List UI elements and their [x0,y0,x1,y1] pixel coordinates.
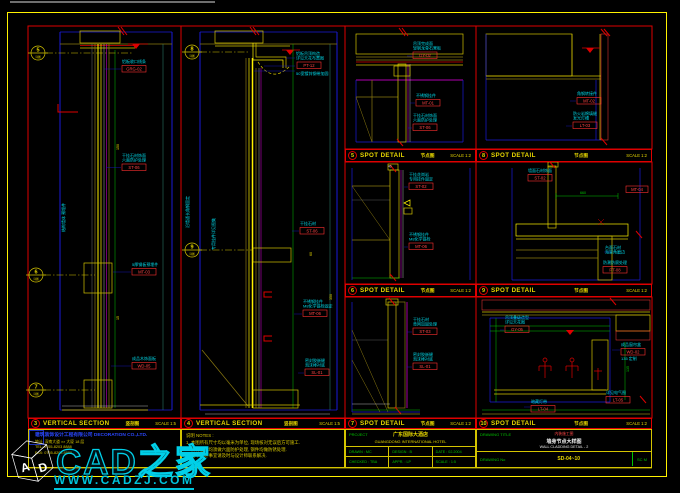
titlebar-scale: SCALE 1:5 [319,421,340,426]
notes-block: 说明 NOTES : 1. 本图所有尺寸均以毫米为单位, 现场核对无误后方可施工… [181,429,345,468]
detail-number-badge: 6 [348,286,357,295]
svg-text:M8化学锚栓: M8化学锚栓 [409,236,431,242]
detail-number-badge: 3 [31,419,40,428]
titlebar-scale: SCALE 1:2 [450,421,471,426]
detail-6-panel: 40 干挂花岗岩 专用挂件固定 ST-02 不锈钢挂件 M8化学锚栓 MT-06 [345,162,476,284]
detail-8-panel: 角钢转接件 MT-02 防火岩棉填缝 发光灯槽 LT-03 [476,26,652,149]
detail-number-badge: 9 [479,286,488,295]
titlebar-cn: 竖剖图 [125,421,139,427]
svg-text:PT-08: PT-08 [609,268,621,273]
svg-text:泡沫棒衬底: 泡沫棒衬底 [413,356,433,362]
company-logo [29,430,44,445]
svg-text:6: 6 [34,270,37,276]
callout-8: 8 详图 [182,45,250,59]
titlebar-cn: 节点图 [421,288,435,294]
svg-text:详图: 详图 [189,54,195,58]
titlebar-label: SPOT DETAIL [360,152,405,159]
titlebar-detail-7: 7 SPOT DETAIL 节点图 SCALE 1:2 [345,418,476,429]
titlebar-detail-5: 5 SPOT DETAIL 节点图 SCALE 1:2 [345,149,476,162]
titlebar-cn: 节点图 [574,153,588,159]
titlebar-cn: 节点图 [421,153,435,159]
note-line: 3. 图中未尽事宜请及时与设计师联系解决. [186,453,340,460]
titlebar-scale: SCALE 1:5 [155,421,176,426]
svg-text:5厚钢板预埋件: 5厚钢板预埋件 [132,261,158,267]
svg-text:发光灯槽: 发光灯槽 [573,115,589,121]
titlebar-detail-6: 6 SPOT DETAIL 节点图 SCALE 1:2 [345,284,476,297]
drawing-no-value: SD-04~10 [557,456,580,462]
svg-text:ST-02: ST-02 [534,176,546,181]
svg-text:MT-04: MT-04 [631,187,644,192]
titlebar-scale: SCALE 1:2 [626,421,647,426]
svg-text:墙面石材饰面: 墙面石材饰面 [528,167,552,173]
detail-number-badge: 7 [348,419,357,428]
svg-text:背网加固处理: 背网加固处理 [413,321,437,327]
annotation-vertical: 专用挂件详见图集 [210,218,216,250]
svg-text:15: 15 [116,316,120,320]
titlebar-cn: 节点图 [574,288,588,294]
svg-text:海棠角磨边: 海棠角磨边 [605,249,625,255]
drawing-title-block: DRAWING TITLE 内装施工图 墙身节点大样图 WALL CLADDIN… [476,429,652,468]
svg-text:SL-01: SL-01 [419,364,431,369]
svg-text:MT-02: MT-02 [583,99,596,104]
annotation-group: 吊顶叠级造型 详见天花图 GY-05 成品窗帘盒 WD-02 135 定制 暗藏… [500,314,645,412]
field-approved: APPR. : LP [389,457,432,467]
detail-10-panel: 135 吊顶叠级造型 详见天花图 GY-05 [476,297,652,418]
titlebar-scale: SCALE 1:2 [626,153,647,158]
drawing-title-red: 内装施工图 [477,432,651,437]
company-block: 建筑装饰设计工程有限公司 DECORATION CO.,LTD. 地址: 深南大… [28,429,181,468]
annotation-vertical: 结构墙体 预埋件 [60,203,66,232]
svg-text:详图: 详图 [33,277,39,281]
svg-text:六面防护处理: 六面防护处理 [122,157,146,163]
svg-text:PT-12: PT-12 [303,63,315,68]
annotation-group: 干挂石材 背网加固处理 ST-03 密封胶嵌缝 泡沫棒衬底 SL-01 [407,316,437,370]
svg-text:详见天花布置图: 详见天花布置图 [296,55,324,61]
titlebar-scale: SCALE 1:2 [450,288,471,293]
svg-text:成品木饰面板: 成品木饰面板 [132,355,156,361]
svg-text:LT-03: LT-03 [580,123,591,128]
detail-number-badge: 10 [479,419,488,428]
company-name: 建筑装饰设计工程有限公司 DECORATION CO.,LTD. [35,433,147,440]
svg-text:660: 660 [580,191,586,195]
titlebar-scale: SCALE 1:2 [626,288,647,293]
svg-text:泡沫棒衬底: 泡沫棒衬底 [305,362,325,368]
drawing-no-label: DRAWING No [480,457,505,462]
titlebar-label: SPOT DETAIL [491,420,536,427]
svg-text:SL-01: SL-01 [311,370,323,375]
svg-text:六面防护处理: 六面防护处理 [413,117,437,123]
titlebar-cn: 节点图 [421,421,435,427]
svg-text:WD-02: WD-02 [626,350,640,355]
field-checked: CHECKED : TBA [346,457,389,467]
note-line: 说明 NOTES : [186,433,340,440]
svg-text:8: 8 [190,47,193,53]
annotation-group: 墙面石材饰面 ST-02 MT-04 台面石材 海棠角磨边 防潮防腐处理 PT-… [528,167,648,273]
titlebar-label: SPOT DETAIL [360,287,405,294]
svg-text:135: 135 [626,366,630,372]
field-drawn: DRAWN : MC [346,447,389,456]
titlebar-detail-9: 9 SPOT DETAIL 节点图 SCALE 1:2 [476,284,652,297]
svg-text:WD-05: WD-05 [137,364,151,369]
detail-number-badge: 4 [184,419,193,428]
svg-text:ST-06: ST-06 [306,229,318,234]
drawing-title-cn: 墙身节点大样图 [477,438,651,445]
titlebar-scale: SCALE 1:2 [450,153,471,158]
project-block: PROJECT 广东国际大酒店 GUANGDONG INTERNATIONAL … [345,429,476,468]
svg-text:60: 60 [309,252,313,256]
svg-text:ST-02: ST-02 [415,184,427,189]
detail-9-panel: 660 墙面石材饰面 ST-02 MT-04 台面石材 海棠角磨边 防潮防腐处理… [476,161,652,284]
annotation-group: 铝板吊顶构造 详见天花布置图 PT-12 50宽镀锌钢带加固 干挂石材 ST-0… [254,50,333,376]
field-design: DESIGN : B [389,447,432,456]
titlebar-detail-8: 8 SPOT DETAIL 节点图 SCALE 1:2 [476,149,652,162]
svg-text:5: 5 [36,48,39,54]
svg-text:350: 350 [329,294,333,300]
detail-5-panel: 吊顶完成面 轻钢龙骨石膏板 GY-02 不锈钢挂件 MT-01 干挂石材饰面 六… [345,26,476,149]
svg-text:MT-03: MT-03 [138,270,151,275]
svg-text:7: 7 [34,385,37,391]
svg-text:轻钢龙骨石膏板: 轻钢龙骨石膏板 [413,45,441,51]
svg-text:专用挂件固定: 专用挂件固定 [409,176,433,182]
detail-7-panel: 干挂石材 背网加固处理 ST-03 密封胶嵌缝 泡沫棒衬底 SL-01 [345,297,476,418]
svg-text:详见电气图: 详见电气图 [606,389,626,395]
drawing-title-en: WALL CLADDING DETAIL - 2 [477,445,651,449]
callout-9: 9 详图 [182,243,252,257]
svg-text:铝板收口线条: 铝板收口线条 [122,58,146,64]
titlebar-cn: 节点图 [574,421,588,427]
annotation-vertical: 沿墙通长角钢固定 [184,196,190,228]
svg-text:M8化学锚栓固定: M8化学锚栓固定 [303,303,333,309]
svg-text:暗藏灯带: 暗藏灯带 [531,398,547,404]
svg-text:不锈钢挂件: 不锈钢挂件 [416,92,436,98]
section-3-panel: 5 详图 6 详图 7 详图 150 15 结构墙体 预埋件 铝板收口线条 GR… [26,26,181,418]
annotation-group: 干挂花岗岩 专用挂件固定 ST-02 不锈钢挂件 M8化学锚栓 MT-06 [404,171,433,250]
section-4-panel: 8 详图 9 详图 350 60 沿墙通长角钢固定 专用挂件详见图集 铝板吊顶构… [181,26,345,418]
svg-text:详图: 详图 [35,55,41,59]
svg-text:50宽镀锌钢带加固: 50宽镀锌钢带加固 [296,70,328,76]
svg-text:150: 150 [116,144,120,150]
titlebar-section-3: 3 VERTICAL SECTION 竖剖图 SCALE 1:5 [28,418,181,429]
svg-text:MT-06: MT-06 [415,244,428,249]
svg-text:详图: 详图 [33,392,39,396]
svg-text:详见天花图: 详见天花图 [505,319,525,325]
svg-text:GY-02: GY-02 [419,53,431,58]
project-name-cn: 广东国际大酒店 [346,431,475,438]
svg-text:干挂石材: 干挂石材 [300,220,316,226]
scale-cell: SC M [632,452,651,466]
titlebar-label: SPOT DETAIL [360,420,405,427]
svg-text:9: 9 [190,245,193,251]
company-line: FAX: 0755-8203 8889 [35,451,147,457]
svg-text:MT-01: MT-01 [422,101,435,106]
svg-text:ST-06: ST-06 [128,165,140,170]
detail-number-badge: 5 [348,151,357,160]
svg-text:LT-05: LT-05 [613,398,624,403]
svg-text:详图: 详图 [189,252,195,256]
svg-text:成品窗帘盒: 成品窗帘盒 [621,341,641,347]
titlebar-label: VERTICAL SECTION [196,420,262,427]
titlebar-label: SPOT DETAIL [491,152,536,159]
svg-text:MT-06: MT-06 [309,311,322,316]
svg-text:40: 40 [388,165,392,169]
cad-drawing-sheet: 5 详图 6 详图 7 详图 150 15 结构墙体 预埋件 铝板收口线条 GR… [0,0,680,493]
field-date: DATE : 02.2004 [433,447,475,456]
titlebar-cn: 竖剖图 [284,421,298,427]
annotation-group: 铝板收口线条 GRG-02 干挂石材饰面 六面防护处理 ST-06 5厚钢板预埋… [104,58,158,369]
titlebar-section-4: 4 VERTICAL SECTION 竖剖图 SCALE 1:5 [181,418,345,429]
titlebar-label: VERTICAL SECTION [43,420,109,427]
svg-text:ST-03: ST-03 [419,329,431,334]
svg-text:GY-05: GY-05 [511,327,523,332]
svg-text:防潮防腐处理: 防潮防腐处理 [603,259,627,265]
svg-text:角钢转接件: 角钢转接件 [577,90,597,96]
field-scale: SCALE : 1:5 [433,457,475,467]
svg-text:LT-04: LT-04 [538,407,549,412]
svg-text:135 定制: 135 定制 [621,355,637,361]
annotation-group: 吊顶完成面 轻钢龙骨石膏板 GY-02 不锈钢挂件 MT-01 干挂石材饰面 六… [407,40,441,131]
note-line: 1. 本图所有尺寸均以毫米为单位, 现场核对无误后方可施工. [186,440,340,447]
titlebar-label: SPOT DETAIL [491,287,536,294]
fixture-symbols [539,358,602,380]
detail-number-badge: 8 [479,151,488,160]
svg-text:ST-06: ST-06 [419,125,431,130]
project-name-en: GUANGDONG INTERNATIONAL HOTEL [346,439,475,444]
titlebar-detail-10: 10 SPOT DETAIL 节点图 SCALE 1:2 [476,418,652,429]
svg-text:GRG-02: GRG-02 [126,67,142,72]
